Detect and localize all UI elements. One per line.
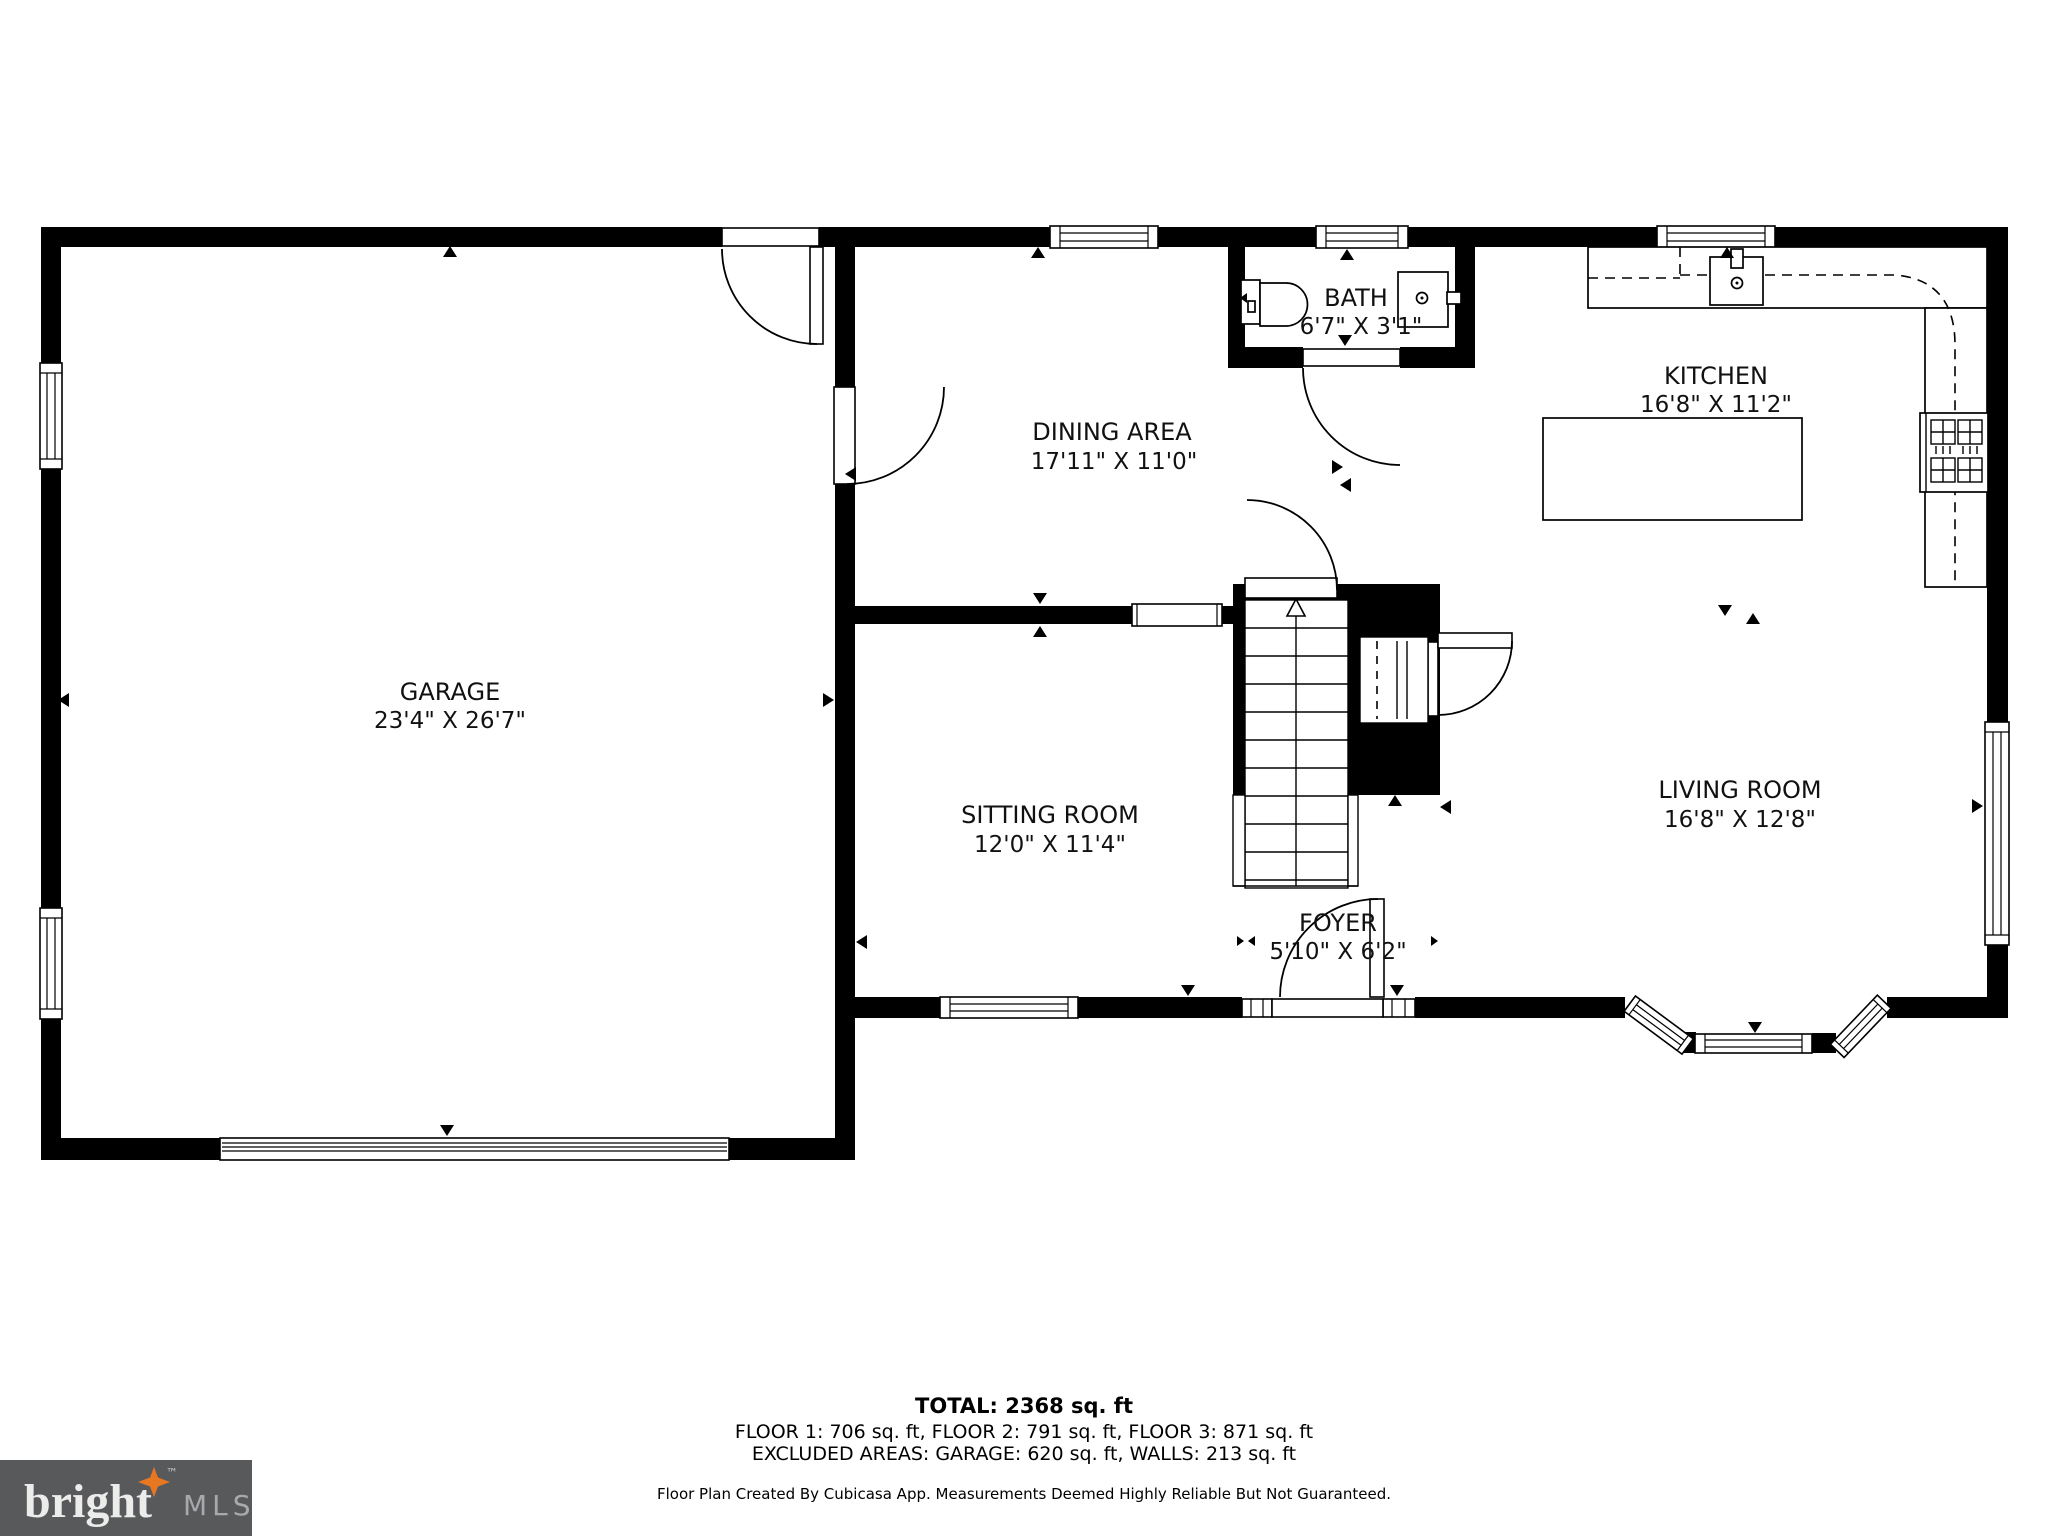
stove-icon: [1920, 413, 1988, 492]
wall-top: [1408, 227, 1657, 247]
kitchen-sink-icon: [1710, 249, 1763, 305]
brand-logo: bright ™ MLS: [0, 1460, 256, 1536]
wall-garage-right: [835, 247, 855, 387]
garage-label: GARAGE: [400, 678, 500, 706]
bath-label: BATH: [1324, 284, 1388, 312]
dining-dims: 17'11" X 11'0": [1031, 449, 1198, 475]
living-dims: 16'8" X 12'8": [1664, 807, 1816, 833]
kitchen-dims: 16'8" X 11'2": [1640, 392, 1792, 418]
window-bay-center: [1695, 1034, 1812, 1053]
door-stairs-top: [1245, 500, 1337, 598]
window-dining: [1050, 226, 1158, 248]
foyer-label: FOYER: [1299, 909, 1377, 937]
garage-dims: 23'4" X 26'7": [374, 708, 526, 734]
door-bath: [1303, 349, 1400, 465]
window-sidelight-left: [1242, 999, 1272, 1017]
marker-up-icon: [1388, 795, 1402, 806]
wall-front: [855, 997, 940, 1018]
floor-plan-canvas: GARAGE 23'4" X 26'7" DINING AREA 17'11" …: [0, 0, 2048, 1536]
wall-right: [1987, 945, 2008, 1018]
sitting-dims: 12'0" X 11'4": [974, 832, 1126, 858]
door-closet: [1428, 633, 1512, 716]
marker-left-icon: [1248, 936, 1255, 946]
wall-top: [819, 227, 1050, 247]
kitchen-island: [1543, 418, 1802, 520]
door-garage-exterior: [722, 228, 823, 344]
marker-right-icon: [1431, 936, 1438, 946]
garage-door: [220, 1138, 729, 1160]
window-sidelight-right: [1383, 999, 1415, 1017]
marker-left-icon: [1340, 478, 1351, 492]
wall-stairwell-left: [1233, 600, 1245, 795]
footer-total: TOTAL: 2368 sq. ft: [915, 1394, 1133, 1418]
floorplan-page: { "plan": { "rooms": { "garage": {"name"…: [0, 0, 2048, 1536]
room-labels: GARAGE 23'4" X 26'7" DINING AREA 17'11" …: [374, 284, 1822, 965]
logo-brand-text: bright: [24, 1475, 152, 1528]
marker-left-icon: [856, 935, 867, 949]
marker-right-icon: [1332, 460, 1343, 474]
footer-disclaimer: Floor Plan Created By Cubicasa App. Meas…: [657, 1485, 1391, 1503]
wall-divider: [855, 606, 1132, 624]
marker-up-icon: [1340, 249, 1354, 260]
wall-garage-left: [41, 227, 61, 363]
dining-label: DINING AREA: [1032, 418, 1192, 446]
window-living: [1985, 722, 2009, 945]
toilet-icon: [1241, 280, 1308, 326]
wall-top: [1775, 227, 2008, 247]
footer-excluded: EXCLUDED AREAS: GARAGE: 620 sq. ft, WALL…: [752, 1443, 1296, 1465]
wall-garage-right: [835, 484, 855, 1138]
living-label: LIVING ROOM: [1658, 776, 1821, 804]
wall-front: [1415, 997, 1625, 1018]
footer: TOTAL: 2368 sq. ft FLOOR 1: 706 sq. ft, …: [657, 1394, 1391, 1503]
wall-garage-bottom: [41, 1138, 220, 1160]
marker-right-icon: [1237, 936, 1244, 946]
kitchen-label: KITCHEN: [1664, 362, 1768, 390]
marker-left-icon: [1440, 800, 1451, 814]
wall-garage-left: [41, 469, 61, 908]
sitting-label: SITTING ROOM: [961, 801, 1139, 829]
marker-down-icon: [1748, 1022, 1762, 1033]
door-garage-dining: [834, 387, 944, 484]
marker-down-icon: [1390, 985, 1404, 996]
window-bay-left: [1624, 996, 1693, 1054]
stair-rail-right: [1348, 795, 1358, 886]
marker-right-icon: [1972, 799, 1983, 813]
foyer-dims: 5'10" X 6'2": [1269, 939, 1406, 965]
wall-right: [1987, 247, 2008, 722]
wall-top: [41, 227, 722, 247]
marker-up-icon: [1031, 247, 1045, 258]
wall-garage-bottom: [729, 1138, 855, 1160]
under-stair-closet: [1360, 637, 1428, 723]
window-garage-lower: [40, 908, 62, 1019]
opening-divider: [1132, 604, 1222, 626]
window-kitchen: [1657, 226, 1775, 248]
stair-rail-left: [1233, 795, 1245, 886]
bath-dims: 6'7" X 3'1": [1300, 314, 1423, 340]
logo-suffix-text: MLS: [183, 1489, 256, 1522]
marker-up-icon: [443, 246, 457, 257]
window-bath: [1316, 226, 1408, 248]
logo-tm: ™: [166, 1466, 178, 1480]
marker-down-icon: [440, 1125, 454, 1136]
wall-bath-bottom: [1400, 347, 1475, 368]
wall-top: [1158, 227, 1316, 247]
window-garage-upper: [40, 363, 62, 469]
wall-bath-bottom: [1228, 347, 1303, 368]
wall-divider: [1222, 606, 1233, 624]
marker-up-icon: [1746, 613, 1760, 624]
wall-front: [1078, 997, 1242, 1018]
marker-up-icon: [1033, 626, 1047, 637]
window-sitting: [940, 997, 1078, 1018]
marker-down-icon: [1033, 593, 1047, 604]
marker-down-icon: [1718, 605, 1732, 616]
marker-right-icon: [823, 693, 834, 707]
footer-floors: FLOOR 1: 706 sq. ft, FLOOR 2: 791 sq. ft…: [735, 1421, 1313, 1443]
window-bay-right: [1830, 995, 1891, 1057]
marker-down-icon: [1181, 985, 1195, 996]
